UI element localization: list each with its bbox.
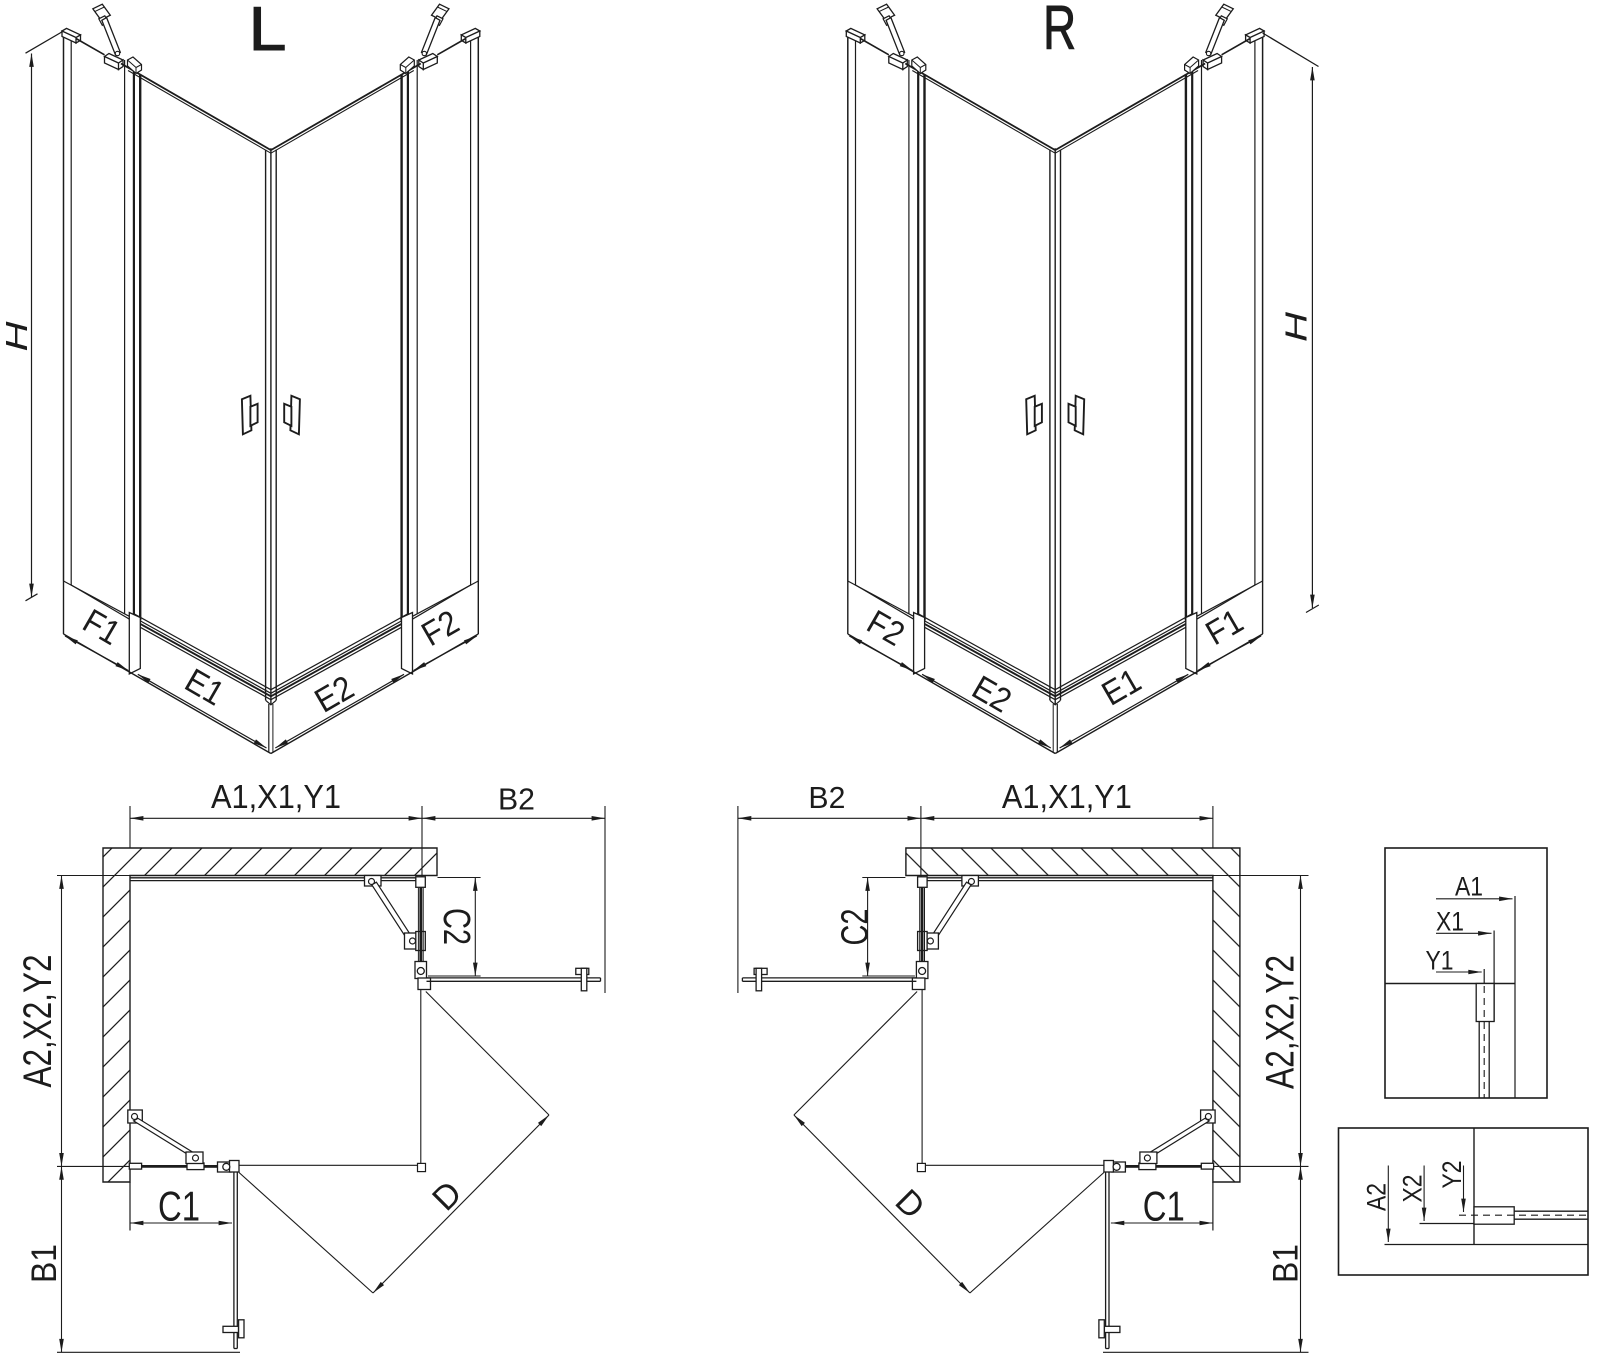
svg-text:D: D bbox=[425, 1174, 469, 1218]
svg-text:A1,X1,Y1: A1,X1,Y1 bbox=[211, 778, 341, 815]
svg-text:X2: X2 bbox=[1398, 1175, 1428, 1203]
svg-text:D: D bbox=[888, 1182, 932, 1226]
svg-text:A2,X2,Y2: A2,X2,Y2 bbox=[16, 955, 60, 1088]
svg-text:A1,X1,Y1: A1,X1,Y1 bbox=[1002, 778, 1132, 815]
svg-text:C2: C2 bbox=[435, 908, 477, 945]
svg-text:E2: E2 bbox=[309, 669, 361, 721]
svg-text:E2: E2 bbox=[966, 669, 1018, 721]
svg-text:H: H bbox=[0, 321, 34, 352]
svg-text:H: H bbox=[1279, 311, 1314, 342]
svg-text:C2: C2 bbox=[835, 909, 877, 946]
svg-text:B1: B1 bbox=[25, 1244, 64, 1283]
svg-text:C1: C1 bbox=[158, 1183, 200, 1230]
svg-text:A2: A2 bbox=[1362, 1183, 1392, 1211]
svg-text:B2: B2 bbox=[808, 780, 845, 815]
svg-text:L: L bbox=[249, 0, 287, 64]
svg-text:B2: B2 bbox=[498, 782, 535, 817]
svg-text:B1: B1 bbox=[1267, 1244, 1306, 1283]
svg-text:Y1: Y1 bbox=[1426, 946, 1454, 976]
svg-text:Y2: Y2 bbox=[1437, 1161, 1467, 1189]
svg-text:C1: C1 bbox=[1143, 1183, 1185, 1230]
svg-text:R: R bbox=[1043, 0, 1076, 63]
svg-text:A1: A1 bbox=[1455, 872, 1483, 902]
svg-text:A2,X2,Y2: A2,X2,Y2 bbox=[1259, 955, 1303, 1089]
svg-text:X1: X1 bbox=[1436, 907, 1464, 937]
